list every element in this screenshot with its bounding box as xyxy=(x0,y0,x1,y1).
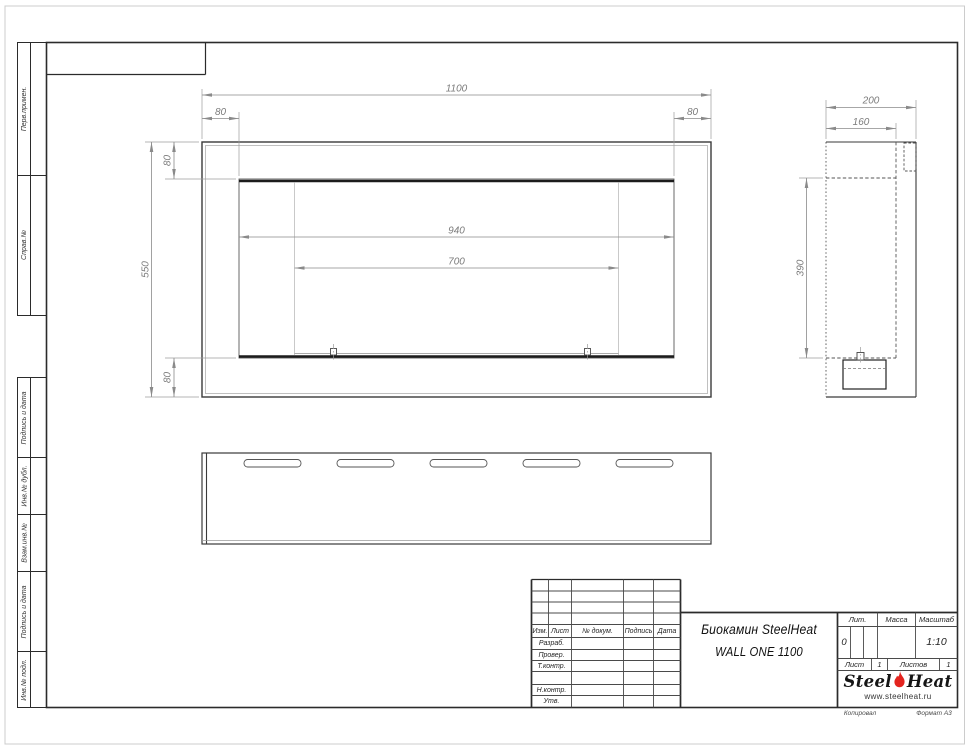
mounting-bracket xyxy=(904,143,916,171)
side-view xyxy=(826,142,916,397)
dim-flange-right: 80 xyxy=(687,107,699,118)
tb-row-tkontr: Т.контр. xyxy=(532,661,572,672)
dim-inner-depth: 160 xyxy=(853,117,870,128)
top-left-stamp xyxy=(47,43,206,75)
vent-slots xyxy=(244,460,673,468)
dim-flange-left: 80 xyxy=(215,107,227,118)
footer-copy-label: Копировал xyxy=(830,709,890,719)
dim-burner-width: 700 xyxy=(448,257,465,268)
tb-col-list: Лист xyxy=(549,625,572,638)
burner-edges xyxy=(295,182,619,355)
extension-lines xyxy=(145,89,916,397)
margin-label-inv-dubl: Инв.№ дубл. xyxy=(18,458,30,515)
tb-row-prover: Провер. xyxy=(532,650,572,661)
margin-label-sprav-no: Справ.№ xyxy=(18,175,30,315)
tb-col-data: Дата xyxy=(654,625,681,638)
dim-depth: 200 xyxy=(862,96,880,107)
tb-col-podpis: Подпись xyxy=(624,625,654,638)
tb-col-doc: № докум. xyxy=(572,625,624,638)
dim-front-width: 1100 xyxy=(446,84,468,95)
tb-sheets-label: Листов xyxy=(888,659,940,671)
logo-heat-text: Heat xyxy=(907,672,953,691)
tb-scale-value: 1:10 xyxy=(916,627,958,659)
logo-steel-text: Steel xyxy=(844,672,892,691)
tb-mass-label: Масса xyxy=(878,613,916,627)
margin-label-inv-podl: Инв.№ подл. xyxy=(18,652,30,708)
tb-row-nkontr: Н.контр. xyxy=(532,685,572,696)
steelheat-logo: Steel Heat xyxy=(839,671,957,692)
dim-flange-bottom: 80 xyxy=(163,372,174,384)
dimension-lines xyxy=(152,95,917,397)
document-title-line2: WALL ONE 1100 xyxy=(691,641,827,661)
drawing-sheet: 1100 80 80 940 700 550 80 80 200 160 390 xyxy=(0,0,970,750)
document-title-line1: Биокамин SteelHeat xyxy=(691,618,827,640)
flame-icon xyxy=(892,671,907,690)
tb-row-utv: Утв. xyxy=(532,696,572,708)
dim-opening-height: 390 xyxy=(796,259,807,276)
front-opening xyxy=(239,179,674,358)
tb-col-izm: Изм. xyxy=(532,625,549,638)
dim-flange-top: 80 xyxy=(163,155,174,167)
tb-lit-value: 0 xyxy=(838,627,851,659)
margin-label-perv-primen: Перв.примен. xyxy=(18,43,30,175)
tb-row-razrab: Разраб. xyxy=(532,638,572,650)
tb-lit-label: Лит. xyxy=(838,613,878,627)
tb-sheet-value: 1 xyxy=(872,659,888,671)
margin-label-podpis-data-1: Подпись и дата xyxy=(18,378,30,458)
dim-opening-width: 940 xyxy=(448,226,465,237)
tb-scale-label: Масштаб xyxy=(916,613,958,627)
dimension-labels: 1100 80 80 940 700 550 80 80 200 160 390 xyxy=(141,84,880,384)
margin-label-vzam-inv: Взам.инв.№ xyxy=(18,515,30,572)
bottom-view xyxy=(202,453,711,544)
footer-format-label: Формат А3 xyxy=(905,709,963,719)
fuel-tank xyxy=(843,360,886,389)
logo-url: www.steelheat.ru xyxy=(839,691,957,702)
margin-label-podpis-data-2: Подпись и дата xyxy=(18,572,30,652)
dim-front-height: 550 xyxy=(141,261,152,278)
front-view xyxy=(202,142,711,397)
tb-sheet-label: Лист xyxy=(838,659,872,671)
tb-sheets-value: 1 xyxy=(940,659,958,671)
inner-cavity-hidden xyxy=(826,142,896,358)
